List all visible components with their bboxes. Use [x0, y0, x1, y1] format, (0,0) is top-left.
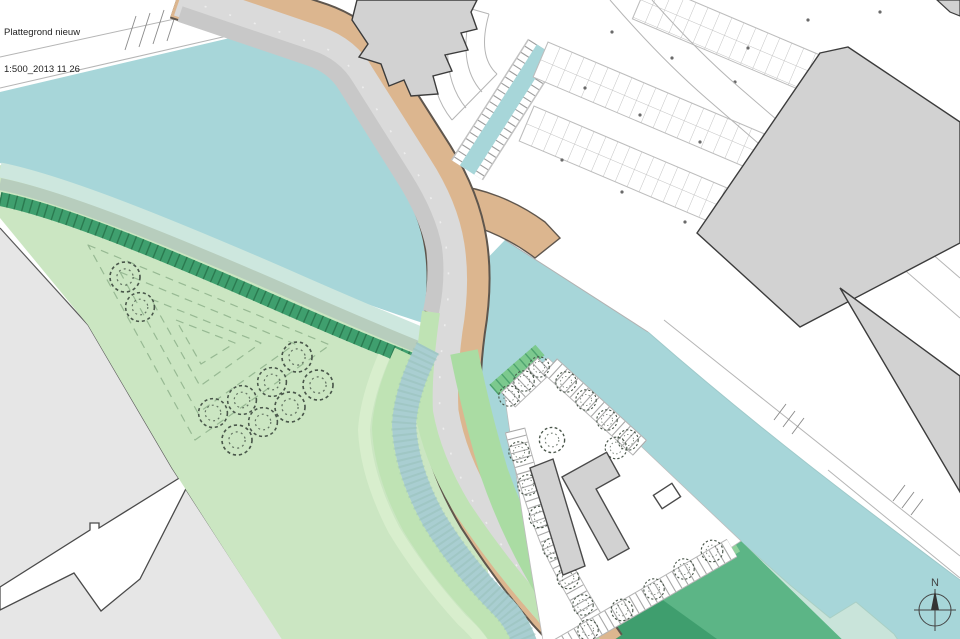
drawing-scale-date: 1:500_2013 11 26 [4, 64, 80, 76]
quay-ticks-mid [774, 404, 804, 434]
drawing-title: Plattegrond nieuw [4, 27, 80, 39]
site-plan-map: N [0, 0, 960, 639]
building-east-2 [840, 288, 960, 492]
drawing-title-block: Plattegrond nieuw 1:500_2013 11 26 [4, 2, 80, 101]
quay-ticks-corner [893, 485, 923, 515]
compass-north-label: N [931, 577, 939, 589]
building-corner-ne [937, 0, 960, 16]
parking-row-3 [632, 0, 827, 95]
site-plan-page: Plattegrond nieuw 1:500_2013 11 26 [0, 0, 960, 639]
building-east-1 [697, 47, 960, 327]
